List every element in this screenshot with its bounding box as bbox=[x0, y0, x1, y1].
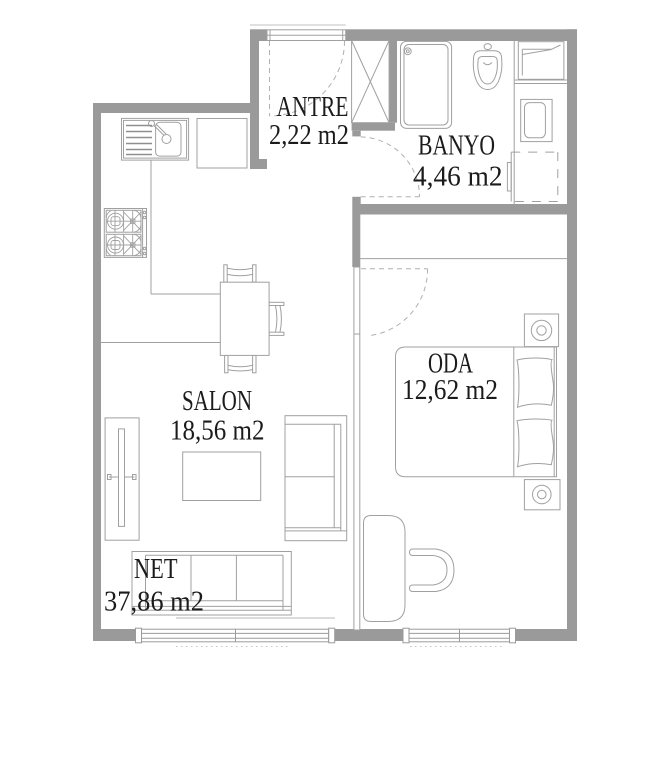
svg-text:12,62 m2: 12,62 m2 bbox=[402, 374, 498, 406]
svg-text:37,86 m2: 37,86 m2 bbox=[104, 586, 204, 618]
svg-text:18,56 m2: 18,56 m2 bbox=[170, 415, 265, 447]
svg-text:SALON: SALON bbox=[182, 385, 252, 417]
svg-text:2,22 m2: 2,22 m2 bbox=[269, 119, 349, 151]
svg-text:4,46 m2: 4,46 m2 bbox=[413, 161, 503, 193]
svg-text:BANYO: BANYO bbox=[418, 130, 495, 162]
svg-text:NET: NET bbox=[134, 553, 178, 585]
